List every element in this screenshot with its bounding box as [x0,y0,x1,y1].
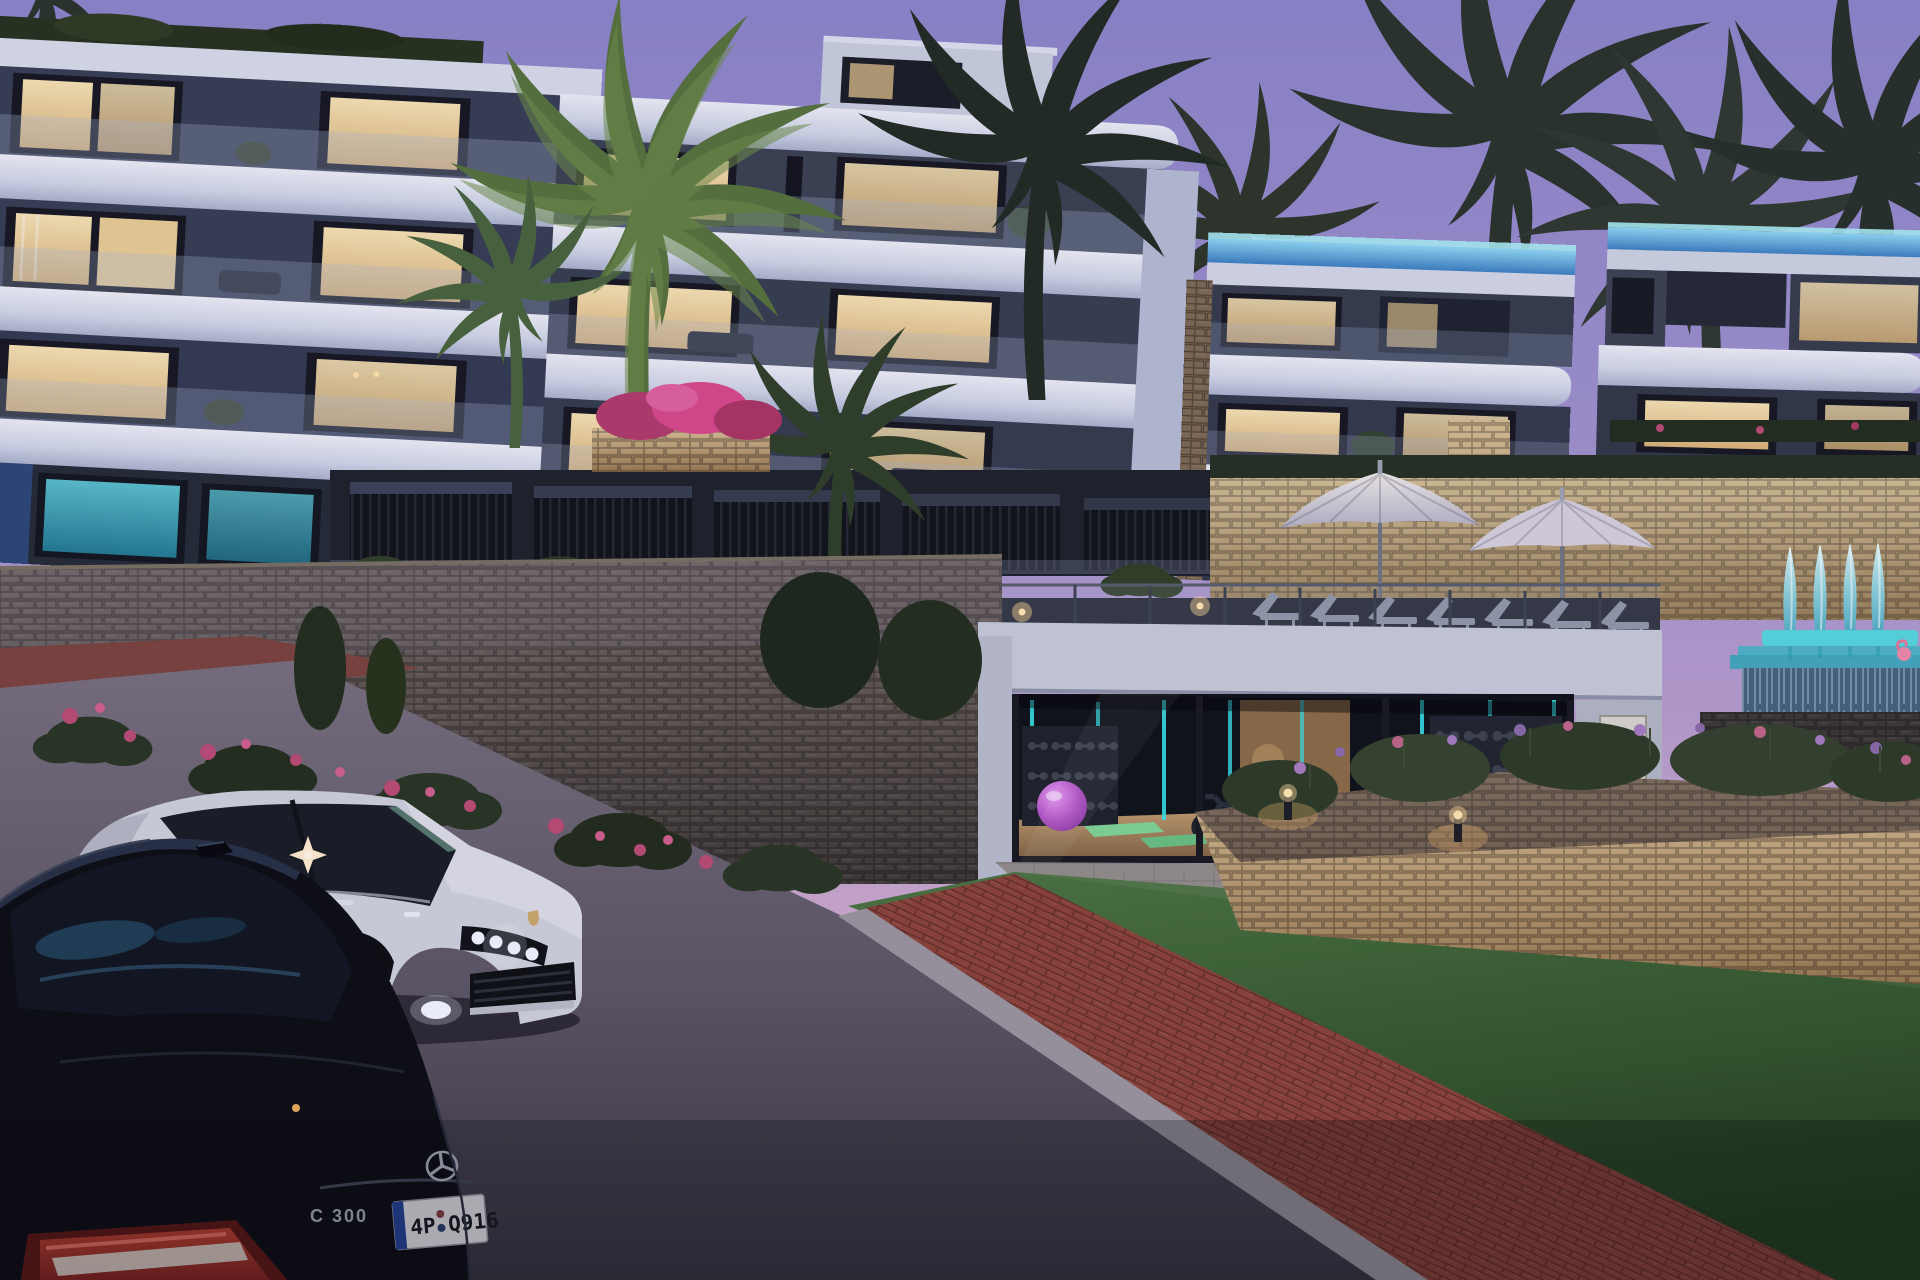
color-grade-overlay [0,0,1920,1280]
bottom-vignette [0,1120,1920,1280]
scene-canvas: C 300 4P Q916 [0,0,1920,1280]
rendered-photo: C 300 4P Q916 [0,0,1920,1280]
